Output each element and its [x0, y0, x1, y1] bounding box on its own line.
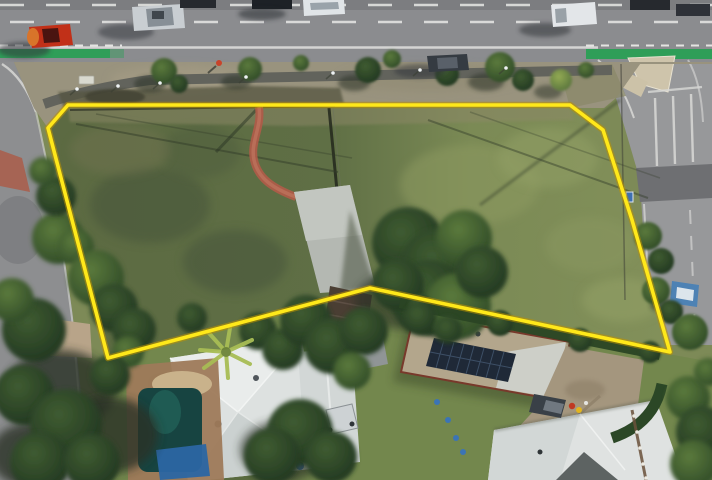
bush — [648, 248, 674, 274]
house-3-vent — [538, 450, 543, 455]
dark-car-top-3 — [630, 0, 670, 10]
toy-white — [584, 401, 588, 405]
tree — [383, 50, 401, 68]
aerial-photo — [0, 0, 712, 480]
toy-blue-2 — [445, 417, 451, 423]
roof-vent-2 — [253, 375, 259, 381]
toy-red — [569, 403, 575, 409]
grass-light-3 — [545, 217, 635, 273]
tree — [578, 62, 594, 78]
bike-lane-left-fade — [110, 49, 124, 58]
tree — [404, 302, 436, 334]
tree — [485, 52, 515, 82]
toy-blue-3 — [453, 435, 459, 441]
toy-yellow — [576, 407, 582, 413]
red-hatchback-glass — [42, 28, 60, 43]
dark-car-top-2 — [252, 0, 292, 9]
tree — [177, 303, 207, 333]
aerial-photo-canvas — [0, 0, 712, 480]
dark-sedan-roof — [437, 57, 458, 69]
toy-blue-1 — [434, 399, 440, 405]
utility-box — [79, 76, 94, 84]
bush — [672, 314, 708, 350]
path-light — [244, 75, 248, 79]
tree — [170, 75, 188, 93]
palm-centre — [221, 347, 231, 357]
grass-dark-2 — [183, 230, 287, 294]
path-light — [75, 87, 79, 91]
trailer-wheel-2 — [350, 422, 355, 427]
tree — [238, 57, 262, 81]
tree — [456, 246, 508, 298]
grass-dark-1 — [90, 167, 210, 243]
car-shadow — [238, 8, 286, 20]
fresh-asphalt-patch — [636, 164, 712, 202]
pedestrian-red — [216, 60, 222, 66]
silver-sedan-sunroof — [152, 11, 164, 19]
tree — [29, 157, 57, 185]
path-light — [158, 81, 162, 85]
tree — [550, 69, 572, 91]
tree — [293, 55, 309, 71]
path-light — [418, 68, 422, 72]
dark-car-top-4 — [676, 4, 710, 16]
fence-post — [632, 414, 636, 418]
tree — [512, 69, 534, 91]
fence-post — [638, 446, 642, 450]
fence-post — [641, 462, 645, 466]
white-suv-glass — [310, 2, 339, 10]
red-hatchback-hood — [27, 28, 39, 46]
tree — [355, 57, 381, 83]
white-van-windshield — [555, 8, 567, 23]
pool-tarp — [156, 444, 210, 480]
tree — [434, 316, 462, 344]
path-light — [504, 66, 508, 70]
fence-post — [635, 430, 639, 434]
tree — [333, 352, 371, 390]
path-light — [116, 84, 120, 88]
toy-blue-4 — [460, 449, 466, 455]
fence-post — [644, 476, 648, 480]
dark-car-top-1 — [180, 0, 216, 8]
tree — [340, 307, 388, 355]
path-light — [331, 71, 335, 75]
tree — [90, 355, 130, 395]
